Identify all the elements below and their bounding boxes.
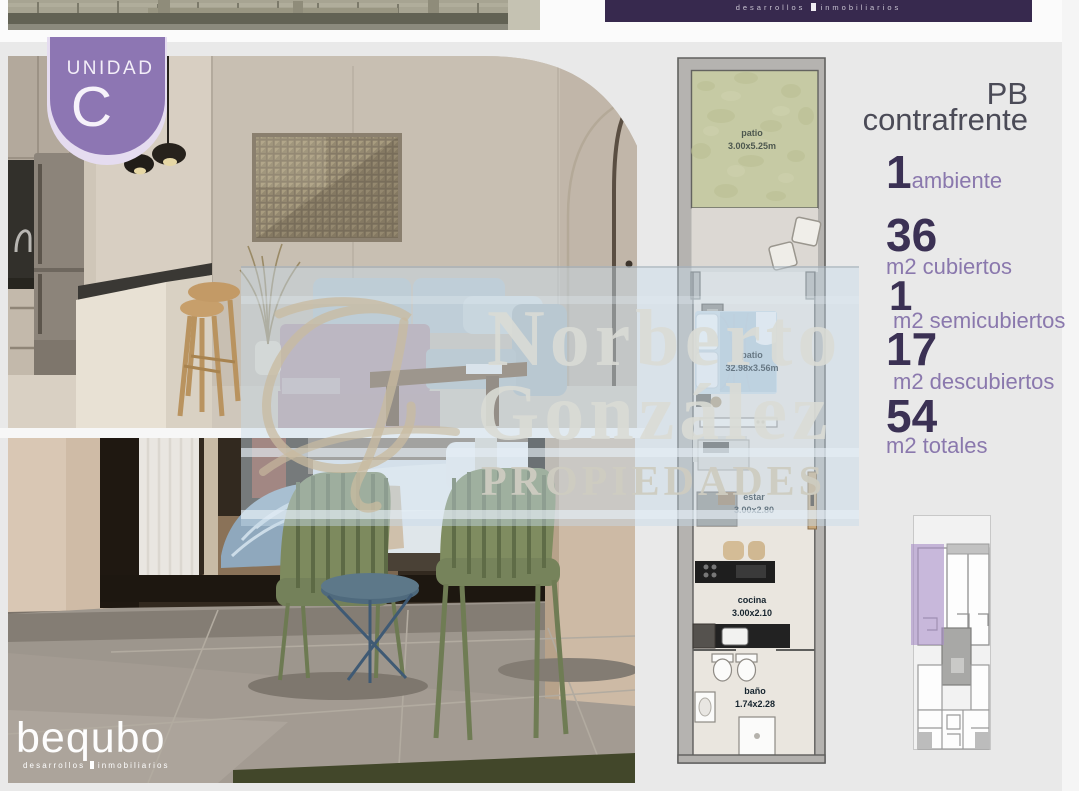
svg-text:baño: baño [744, 686, 766, 696]
svg-text:1.74x2.28: 1.74x2.28 [735, 699, 775, 709]
svg-text:cocina: cocina [738, 595, 768, 605]
svg-text:3.00x2.10: 3.00x2.10 [732, 608, 772, 618]
svg-text:patio: patio [741, 128, 763, 138]
svg-text:3.00x5.25m: 3.00x5.25m [728, 141, 776, 151]
